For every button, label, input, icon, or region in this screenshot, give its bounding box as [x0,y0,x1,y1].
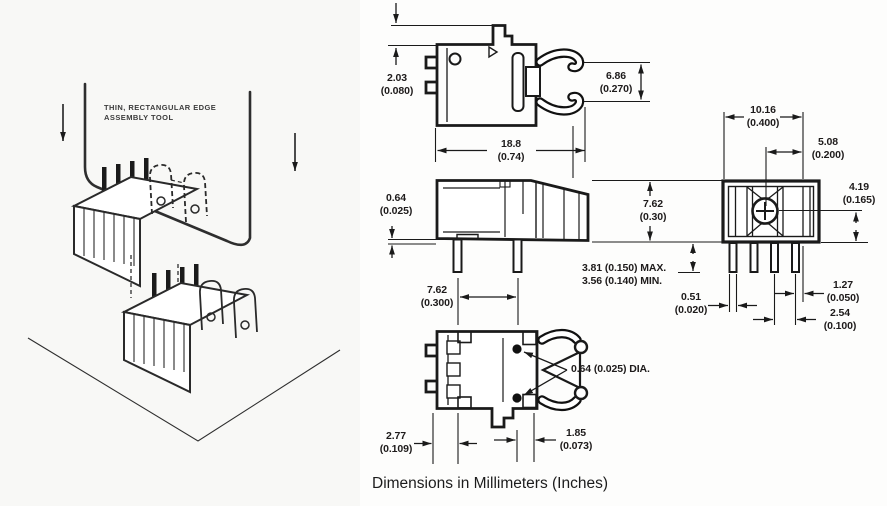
dim-pin-span [458,278,518,325]
dim-label-pin-dia: 0.64 (0.025) DIA. [571,363,650,376]
top-view [426,26,580,126]
dim-label-standoff: 0.64(0.025) [380,192,413,218]
tool-label: THIN, RECTANGULAR EDGE ASSEMBLY TOOL [104,103,216,122]
dim-label-end-half-width: 5.08(0.200) [812,136,845,162]
upper-connector [74,158,207,286]
dim-label-pin-width: 0.51(0.020) [675,291,708,317]
dim-label-clip-gap: 6.86(0.270) [600,70,633,96]
clip-fork-top [540,53,580,111]
dim-label-body-height: 7.62(0.30) [640,198,667,224]
dim-label-tab-offset: 1.85(0.073) [560,427,593,453]
pin-hole-dot-upper [512,344,521,353]
side-view [437,181,588,273]
drawing-canvas [0,0,887,506]
units-caption: Dimensions in Millimeters (Inches) [372,474,608,494]
assembly-illustration [28,84,340,441]
dim-top-offset [388,3,492,65]
dim-label-body-width: 18.8(0.74) [498,138,525,164]
dim-left-edge [414,413,477,464]
bottom-view [426,332,587,428]
datasheet-figure: THIN, RECTANGULAR EDGE ASSEMBLY TOOL 2.0… [0,0,887,506]
dim-label-left-edge: 2.77(0.109) [380,430,413,456]
dim-label-pin-span: 7.62(0.300) [421,284,454,310]
dim-pin-length [678,244,700,273]
screw-boss-icon [753,199,778,224]
end-view [723,181,819,272]
tool-label-line1: THIN, RECTANGULAR EDGE [104,103,216,113]
dim-pin-width [708,274,757,312]
pin-hole-dot-lower [512,393,521,402]
dim-label-end-height: 4.19(0.165) [843,181,876,207]
dim-label-top-offset: 2.03(0.080) [381,72,414,98]
tool-label-line2: ASSEMBLY TOOL [104,113,216,123]
dim-label-pin-edge-offset: 1.27(0.050) [827,279,860,305]
dim-label-pin-pitch: 2.54(0.100) [824,307,857,333]
dim-label-pin-length: 3.81 (0.150) MAX.3.56 (0.140) MIN. [582,262,666,288]
dim-label-end-width: 10.16(0.400) [747,104,780,130]
dim-pin-pitch [753,274,816,325]
lower-connector [124,264,257,392]
